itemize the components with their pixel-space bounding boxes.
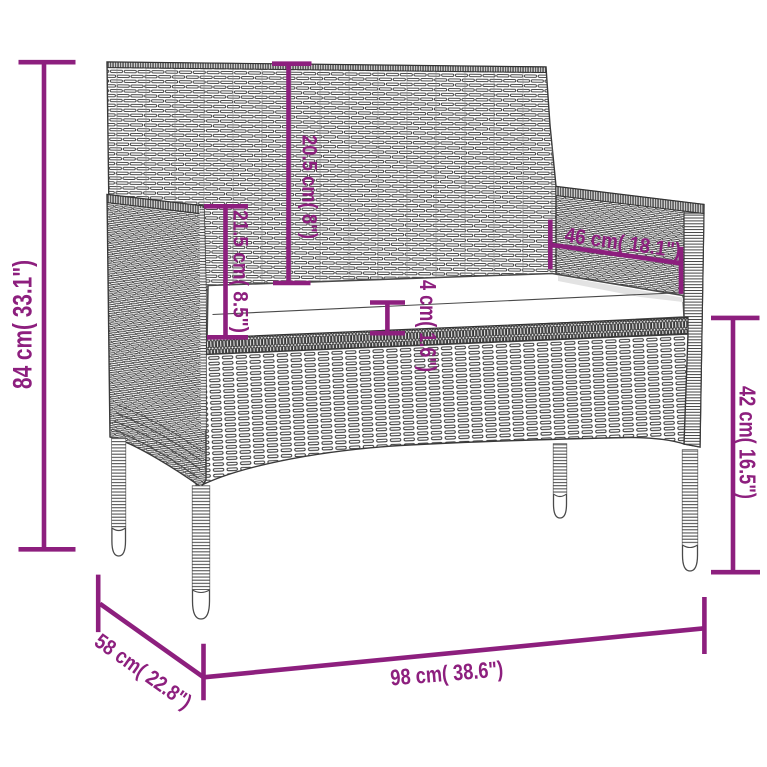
svg-text:4 cm( 1.6"): 4 cm( 1.6") [415,280,441,372]
svg-text:84 cm( 33.1"): 84 cm( 33.1") [8,260,38,389]
svg-text:21.5 cm( 8.5"): 21.5 cm( 8.5") [229,210,253,333]
svg-text:20.5 cm( 8"): 20.5 cm( 8") [298,135,322,239]
svg-text:42 cm( 16.5"): 42 cm( 16.5") [735,386,761,499]
